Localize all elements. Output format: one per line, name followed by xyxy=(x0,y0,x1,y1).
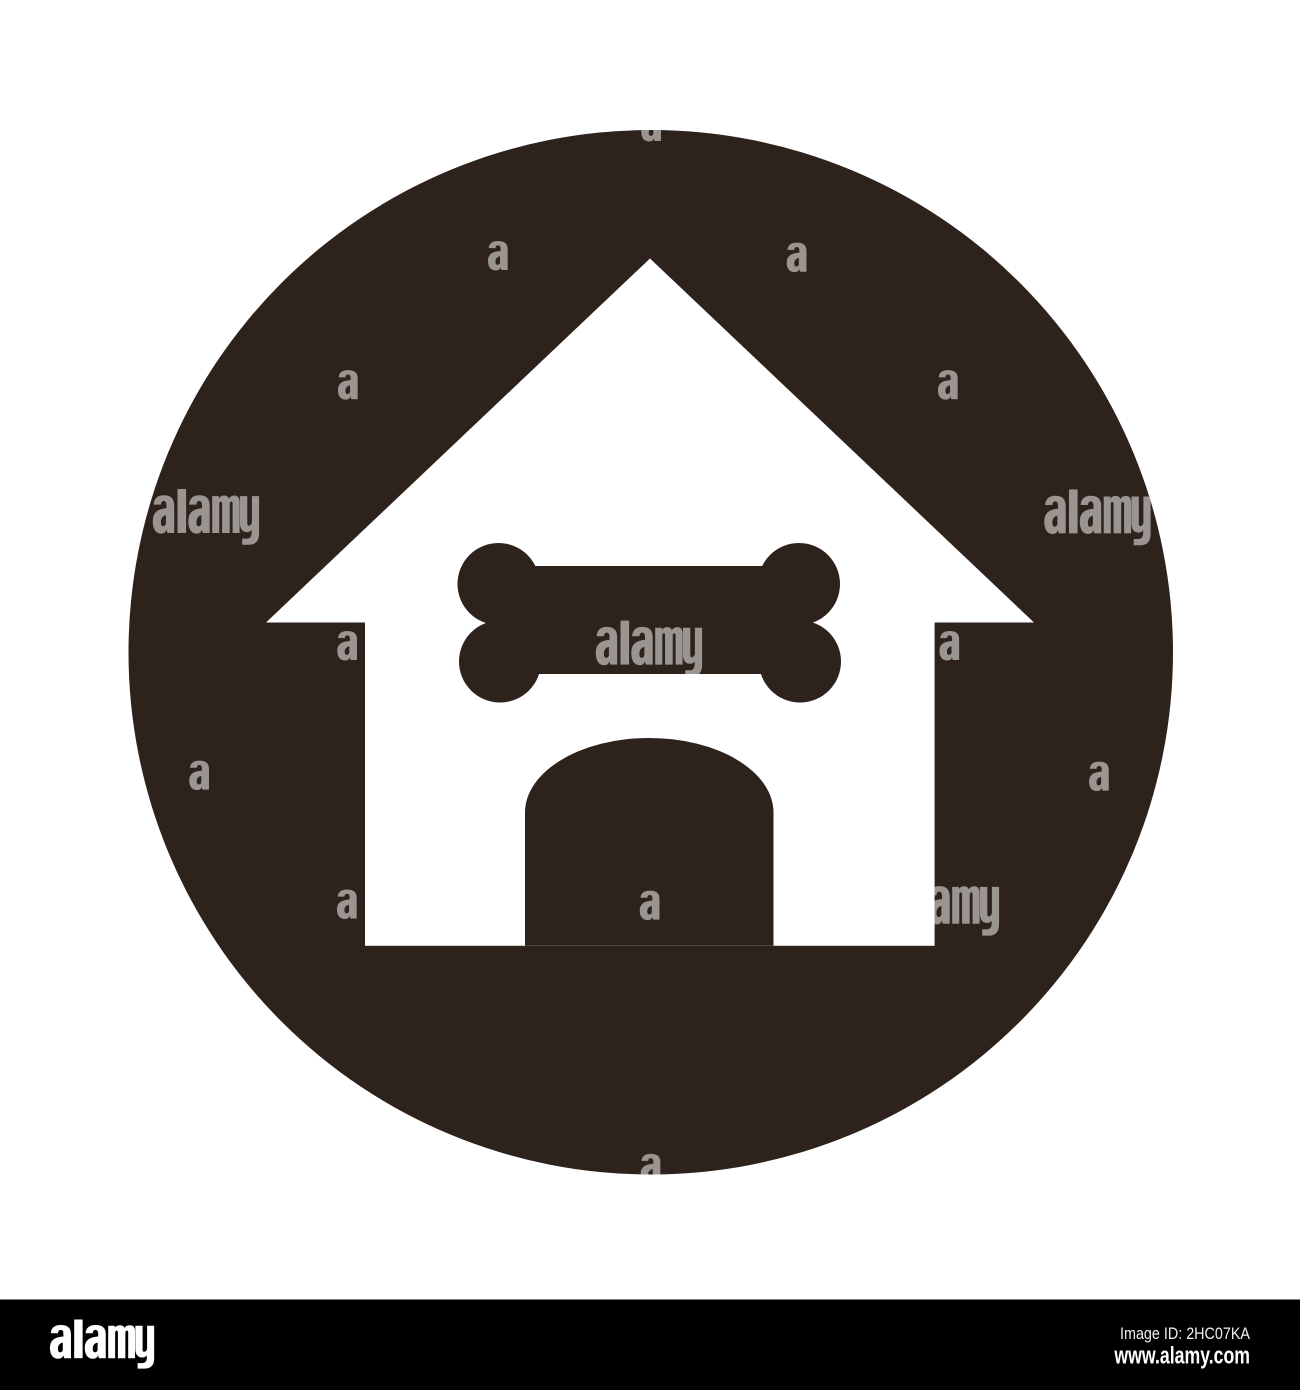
svg-text:www.alamy.com: www.alamy.com xyxy=(1114,1343,1250,1369)
svg-text:Image ID: 2HC07KA: Image ID: 2HC07KA xyxy=(1120,1325,1251,1343)
